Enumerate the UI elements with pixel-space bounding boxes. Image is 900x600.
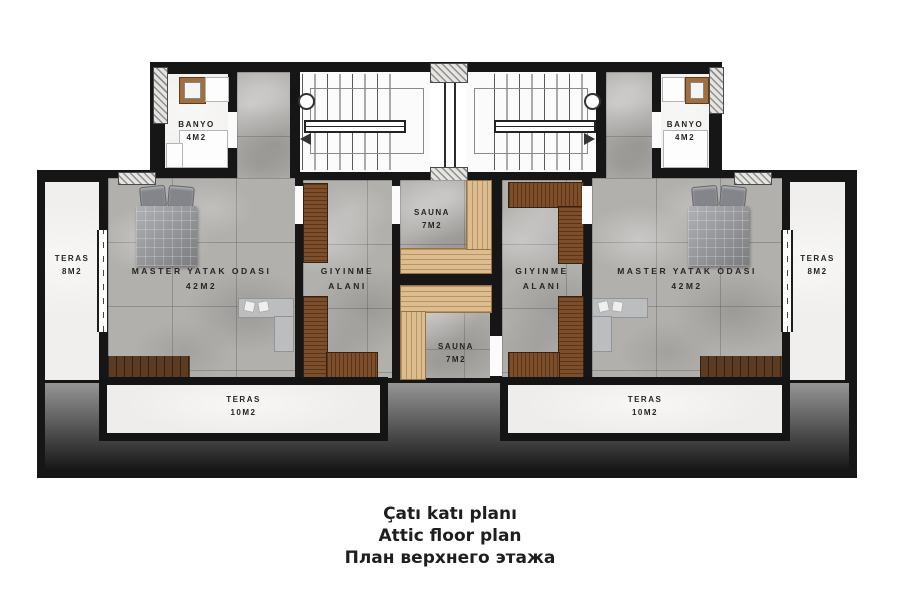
banyo-right-sink bbox=[685, 77, 709, 104]
master-right-label: MASTER YATAK ODASI 42M2 bbox=[592, 264, 782, 294]
bed-right-duvet bbox=[688, 206, 749, 266]
giyinme-right-door bbox=[582, 186, 592, 224]
banyo-right-area: 4M2 bbox=[659, 131, 711, 144]
giyinme-right-name: GIYINME bbox=[498, 264, 586, 279]
sauna-bottom-bench-top bbox=[400, 285, 492, 313]
master-right-top-vent bbox=[734, 172, 772, 185]
teras10-left-area: 10M2 bbox=[99, 406, 388, 419]
giyinme-left-wardrobe-top bbox=[303, 183, 328, 263]
stair-divider-rail bbox=[444, 82, 456, 168]
sauna-bottom-door bbox=[490, 336, 502, 376]
teras-right-sliding-door bbox=[781, 230, 793, 332]
room-teras-left bbox=[45, 182, 99, 380]
sofa-left-cushion-1 bbox=[243, 300, 256, 313]
banyo-right-name: BANYO bbox=[659, 118, 711, 131]
teras-right-label: TERAS 8M2 bbox=[788, 252, 847, 278]
divider-hatch-top bbox=[430, 63, 468, 83]
giyinme-left-label: GIYINME ALANI bbox=[303, 264, 392, 294]
giyinme-left-wardrobe-corner bbox=[326, 352, 378, 380]
sauna-bottom-label: SAUNA 7M2 bbox=[422, 340, 490, 366]
room-teras-right bbox=[790, 182, 845, 380]
giyinme-right-wardrobe-corner bbox=[508, 352, 560, 380]
master-left-label: MASTER YATAK ODASI 42M2 bbox=[108, 264, 295, 294]
sofa-right-chaise bbox=[592, 316, 612, 352]
sauna-top-bench-right bbox=[466, 180, 492, 250]
sofa-right-cushion-1 bbox=[597, 300, 610, 313]
banyo-right-basin bbox=[690, 82, 704, 99]
master-right-area: 42M2 bbox=[592, 279, 782, 294]
giyinme-right-label: GIYINME ALANI bbox=[498, 264, 586, 294]
teras-left-name: TERAS bbox=[43, 252, 101, 265]
teras-left-label: TERAS 8M2 bbox=[43, 252, 101, 278]
caption-english: Attic floor plan bbox=[0, 525, 900, 547]
giyinme-left-name: GIYINME bbox=[303, 264, 392, 279]
corridor-right bbox=[606, 72, 652, 182]
stair-left-start-circle bbox=[298, 93, 315, 110]
banyo-left-door bbox=[228, 112, 237, 148]
sauna-bottom-name: SAUNA bbox=[422, 340, 490, 353]
teras-right-area: 8M2 bbox=[788, 265, 847, 278]
stair-right-handrail bbox=[494, 120, 596, 133]
floor-plan-page: BANYO 4M2 BANYO 4M2 TERAS 8M2 MASTER YAT… bbox=[0, 0, 900, 600]
giyinme-right-area: ALANI bbox=[498, 279, 586, 294]
teras10-right-area: 10M2 bbox=[500, 406, 790, 419]
banyo-left-name: BANYO bbox=[165, 118, 228, 131]
teras-right-name: TERAS bbox=[788, 252, 847, 265]
sofa-left-chaise bbox=[274, 316, 294, 352]
master-left-area: 42M2 bbox=[108, 279, 295, 294]
banyo-left-counter bbox=[205, 77, 229, 102]
master-left-name: MASTER YATAK ODASI bbox=[108, 264, 295, 279]
banyo-left-sink bbox=[179, 77, 206, 104]
teras10-left-label: TERAS 10M2 bbox=[99, 393, 388, 419]
stair-right-start-circle bbox=[584, 93, 601, 110]
caption-turkish: Çatı katı planı bbox=[0, 503, 900, 525]
banyo-left-wc bbox=[166, 143, 183, 168]
banyo-left-area: 4M2 bbox=[165, 131, 228, 144]
sauna-bottom-area: 7M2 bbox=[422, 353, 490, 366]
master-right-name: MASTER YATAK ODASI bbox=[592, 264, 782, 279]
stair-right-direction-arrow bbox=[584, 133, 595, 145]
corridor-left bbox=[237, 72, 290, 182]
giyinme-right-wardrobe-bottom bbox=[558, 296, 584, 380]
banyo-right-label: BANYO 4M2 bbox=[659, 118, 711, 144]
giyinme-left-area: ALANI bbox=[303, 279, 392, 294]
sofa-left-cushion-2 bbox=[257, 300, 270, 313]
teras-left-area: 8M2 bbox=[43, 265, 101, 278]
teras10-left-name: TERAS bbox=[99, 393, 388, 406]
sauna-top-door bbox=[392, 186, 400, 224]
sauna-top-label: SAUNA 7M2 bbox=[398, 206, 466, 232]
giyinme-left-wardrobe-bottom bbox=[303, 296, 328, 380]
giyinme-right-wardrobe-top bbox=[508, 182, 584, 208]
bed-left-duvet bbox=[136, 206, 197, 266]
giyinme-left-door bbox=[295, 186, 303, 224]
sauna-top-area: 7M2 bbox=[398, 219, 466, 232]
banyo-left-label: BANYO 4M2 bbox=[165, 118, 228, 144]
sauna-top-bench-bottom bbox=[400, 248, 492, 274]
teras10-right-label: TERAS 10M2 bbox=[500, 393, 790, 419]
master-left-top-vent bbox=[118, 172, 156, 185]
teras10-right-name: TERAS bbox=[500, 393, 790, 406]
chimney-hatch-left bbox=[153, 67, 168, 124]
banyo-right-counter bbox=[662, 77, 685, 102]
giyinme-right-wardrobe-side bbox=[558, 206, 584, 264]
stair-left-direction-arrow bbox=[300, 133, 311, 145]
sofa-right-cushion-2 bbox=[611, 300, 624, 313]
caption-russian: План верхнего этажа bbox=[0, 547, 900, 569]
chimney-hatch-right bbox=[709, 67, 724, 114]
stair-left-handrail bbox=[304, 120, 406, 133]
banyo-left-basin bbox=[184, 82, 201, 99]
sauna-top-name: SAUNA bbox=[398, 206, 466, 219]
